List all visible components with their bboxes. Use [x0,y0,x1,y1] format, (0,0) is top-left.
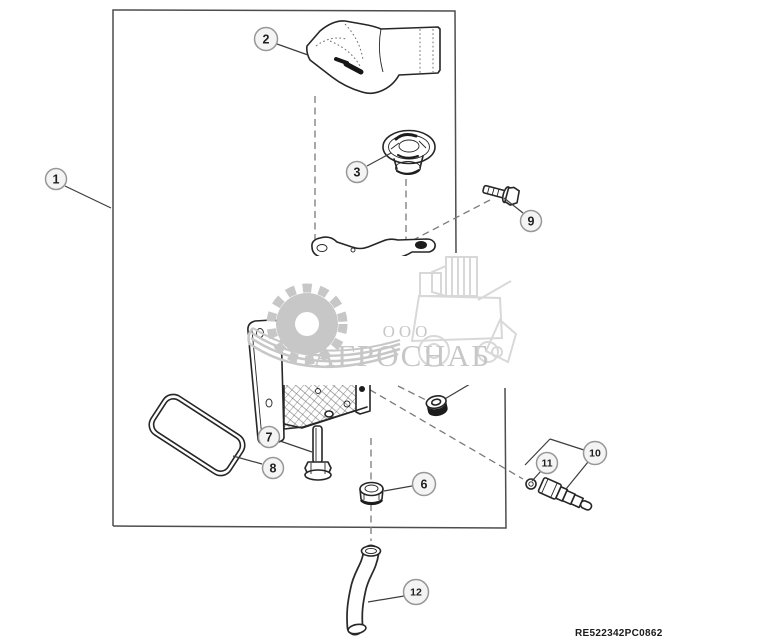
sensor-drawing [538,477,595,514]
parts-diagram: ООО АГРОСНАБ [0,0,781,641]
o-ring-drawing [526,479,536,489]
callout-2-leader [277,44,308,55]
callout-3-number: 3 [354,166,361,180]
callout-1-leader [65,186,111,208]
callout-10-group-line [550,439,584,450]
callout-6-leader [384,486,412,491]
callout-8-number: 8 [270,462,277,476]
watermark-org-name: АГРОСНАБ [313,338,491,373]
drawing-code: RE522342PC0862 [575,628,685,641]
nut-drawing [425,384,470,418]
callout-2-number: 2 [263,33,270,47]
callout-12-leader [368,596,404,602]
bolt-7-drawing [305,426,331,480]
grommet-drawing [360,483,383,504]
callout-1-number: 1 [53,173,60,187]
thermostat-drawing [383,131,435,175]
gasket-drawing [145,390,250,480]
callout-6-number: 6 [421,478,428,492]
water-outlet-elbow-drawing [307,21,440,93]
callout-7-number: 7 [266,431,273,445]
callout-9-number: 9 [528,215,535,229]
callout-12-number: 12 [410,587,422,599]
callout-11-number: 11 [541,458,552,470]
callout-3-leader [367,153,391,166]
callout-10-leader [566,462,588,489]
callout-7-leader [280,441,312,452]
callout-11-leader [532,471,541,481]
callout-10-number: 10 [589,448,601,460]
hose-drawing [347,546,380,635]
bolt-9-drawing [481,180,520,207]
